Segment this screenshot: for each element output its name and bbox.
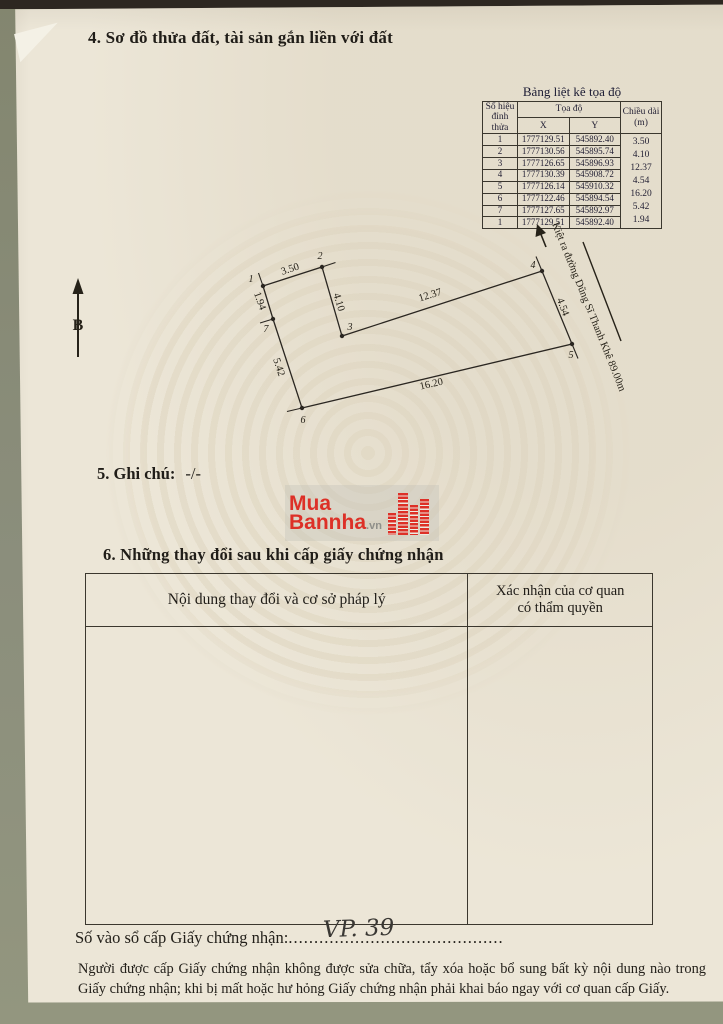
coordinate-table-block: Bảng liệt kê tọa độ Số hiệu đỉnh thửa Tọ… bbox=[482, 84, 662, 229]
col-header-vertex: Số hiệu đỉnh thửa bbox=[483, 102, 518, 134]
handwritten-register-number: VP. 39 bbox=[323, 915, 395, 943]
changes-body-col2 bbox=[468, 627, 652, 925]
vertex-points bbox=[261, 265, 574, 410]
coordinate-table: Số hiệu đỉnh thửa Tọa độ Chiều dài (m) X… bbox=[482, 101, 662, 229]
coordinate-table-title: Bảng liệt kê tọa độ bbox=[482, 84, 662, 100]
section5-note: 5. Ghi chú:-/- bbox=[97, 464, 201, 484]
vertex-7: 7 bbox=[264, 324, 270, 335]
register-label: Số vào sổ cấp Giấy chứng nhận: bbox=[75, 928, 288, 947]
col-header-x: X bbox=[518, 118, 570, 134]
certificate-page: 4. Sơ đồ thửa đất, tài sản gắn liền với … bbox=[0, 0, 723, 1024]
register-number-line: Số vào sổ cấp Giấy chứng nhận:..........… bbox=[75, 928, 504, 948]
certificate-footnote: Người được cấp Giấy chứng nhận không đượ… bbox=[78, 960, 706, 1000]
parcel-boundary bbox=[263, 267, 572, 408]
dim-2-3: 4.10 bbox=[330, 292, 346, 313]
section5-value: -/- bbox=[185, 464, 201, 483]
col-header-coord: Tọa độ bbox=[518, 102, 621, 118]
road-direction-arrow bbox=[536, 224, 547, 247]
dim-6-7: 5.42 bbox=[270, 357, 286, 378]
dimension-ticks bbox=[259, 257, 579, 412]
vertex-3: 3 bbox=[347, 322, 353, 333]
table-row: 1 1777129.51 545892.40 3.50 4.10 12.37 4… bbox=[483, 134, 662, 146]
vertex-4: 4 bbox=[531, 260, 536, 271]
parcel-diagram: B 3.50 4.10 12.37 bbox=[40, 218, 680, 458]
section6-title: 6. Những thay đổi sau khi cấp giấy chứng… bbox=[103, 545, 444, 565]
vertex-6: 6 bbox=[301, 415, 306, 426]
photographed-document: 4. Sơ đồ thửa đất, tài sản gắn liền với … bbox=[0, 0, 723, 1024]
vertex-1: 1 bbox=[249, 274, 254, 285]
vertex-5: 5 bbox=[569, 350, 574, 361]
north-arrow: B bbox=[73, 278, 84, 357]
changes-col2-header: Xác nhận của cơ quan có thẩm quyền bbox=[468, 574, 652, 626]
col-header-length: Chiều dài (m) bbox=[621, 102, 662, 134]
changes-col1-header: Nội dung thay đổi và cơ sở pháp lý bbox=[86, 574, 468, 626]
length-column: 3.50 4.10 12.37 4.54 16.20 5.42 1.94 bbox=[621, 134, 662, 229]
north-label: B bbox=[73, 317, 84, 334]
dim-3-4: 12.37 bbox=[417, 287, 443, 304]
logo-line2: Bannha bbox=[289, 511, 366, 534]
changes-table: Nội dung thay đổi và cơ sở pháp lý Xác n… bbox=[85, 573, 653, 925]
muabannha-watermark: Mua Bannha.vn bbox=[285, 485, 439, 541]
buildings-icon bbox=[388, 491, 429, 535]
section5-label: 5. Ghi chú: bbox=[97, 464, 175, 483]
dotted-line: ... bbox=[288, 928, 303, 947]
col-header-y: Y bbox=[569, 118, 621, 134]
vertex-2: 2 bbox=[318, 251, 323, 262]
logo-suffix: .vn bbox=[366, 520, 382, 532]
section4-title: 4. Sơ đồ thửa đất, tài sản gắn liền với … bbox=[88, 28, 393, 48]
changes-body-col1 bbox=[86, 627, 468, 925]
